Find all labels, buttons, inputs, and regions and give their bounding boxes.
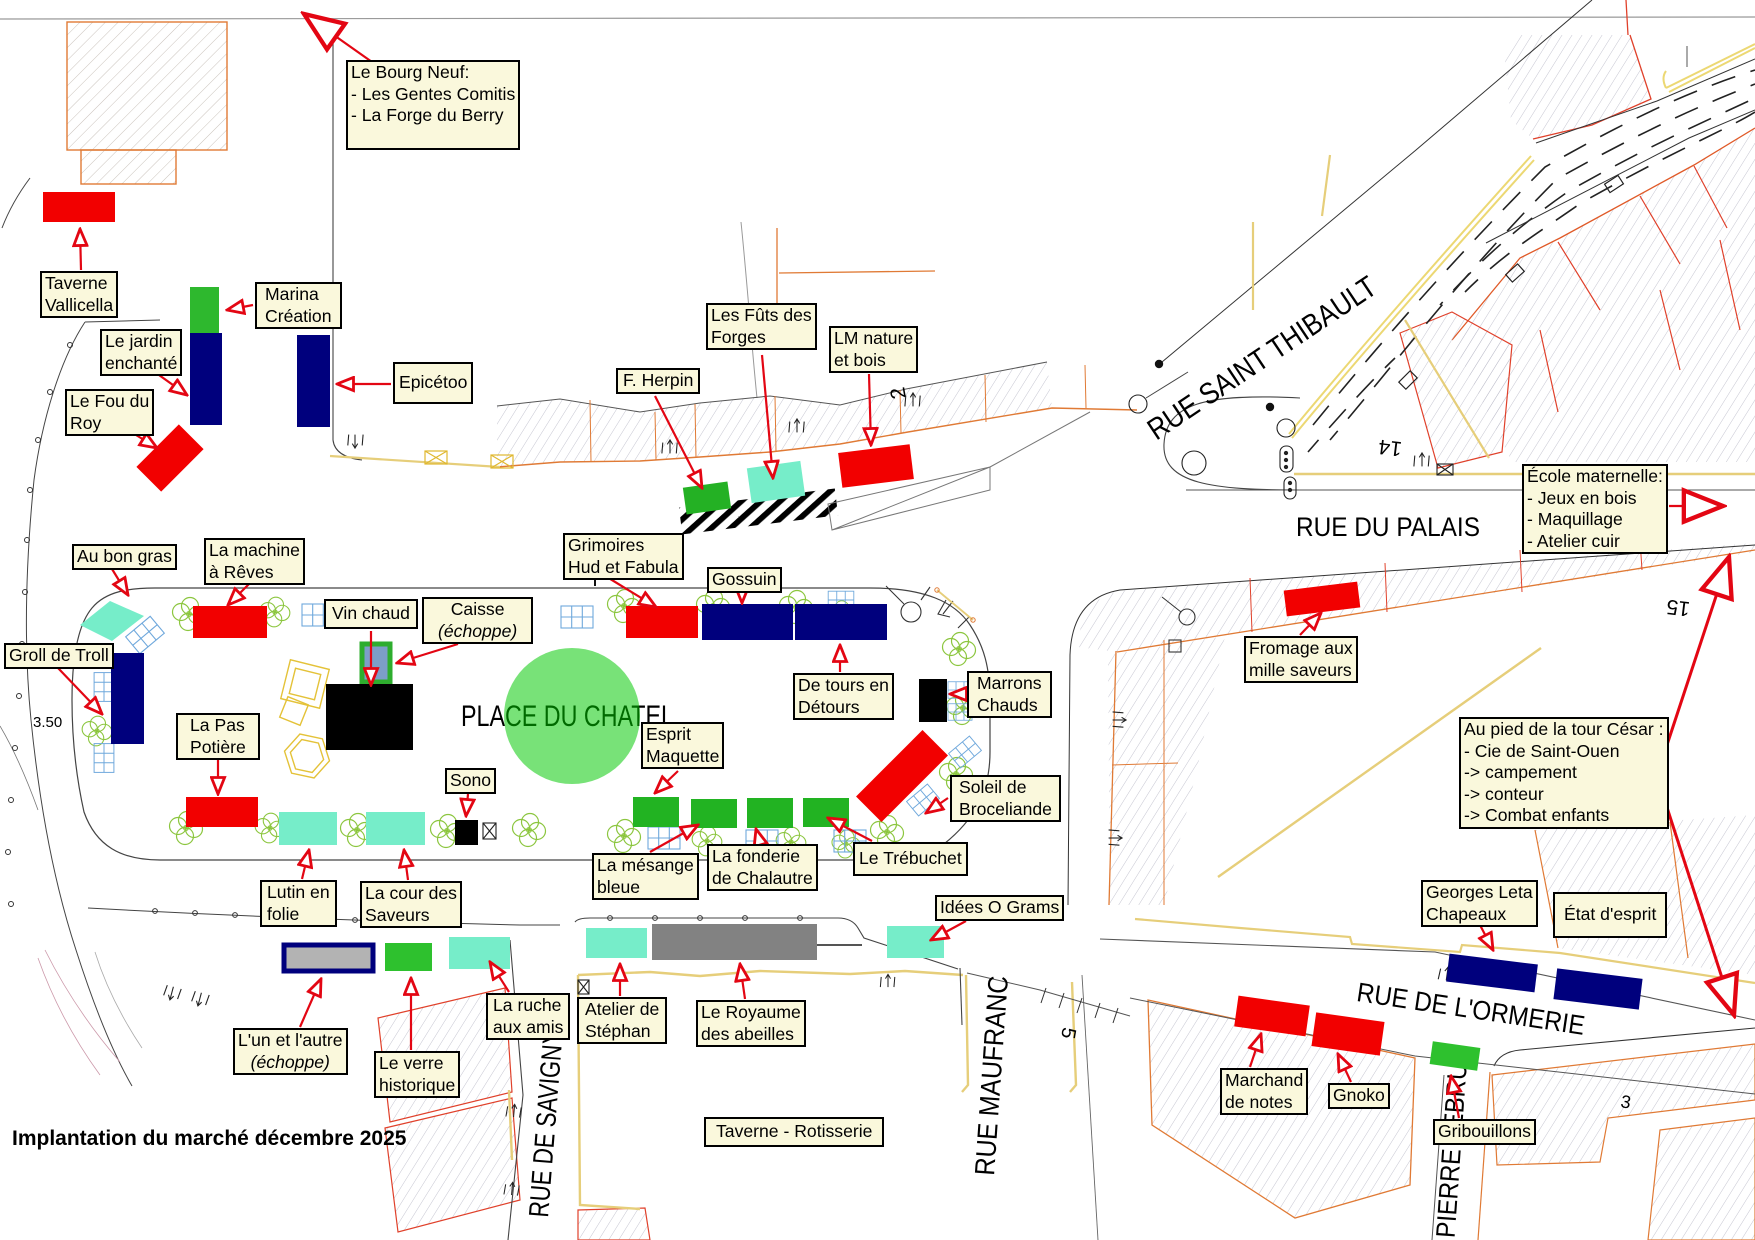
svg-text:3.50: 3.50 xyxy=(33,714,62,731)
svg-text:RUE SAINT THIBAULT: RUE SAINT THIBAULT xyxy=(1142,270,1383,447)
svg-text:15: 15 xyxy=(1665,595,1691,621)
svg-text:14: 14 xyxy=(1377,435,1403,461)
svg-text:5: 5 xyxy=(1056,1026,1080,1041)
svg-text:RUE DU PALAIS: RUE DU PALAIS xyxy=(1296,512,1480,542)
svg-text:RUE DE SAVIGNY: RUE DE SAVIGNY xyxy=(523,1028,569,1218)
svg-text:RUE DE L'ORMERIE: RUE DE L'ORMERIE xyxy=(1355,977,1587,1041)
svg-text:RUE MAUFRANC: RUE MAUFRANC xyxy=(969,975,1014,1177)
